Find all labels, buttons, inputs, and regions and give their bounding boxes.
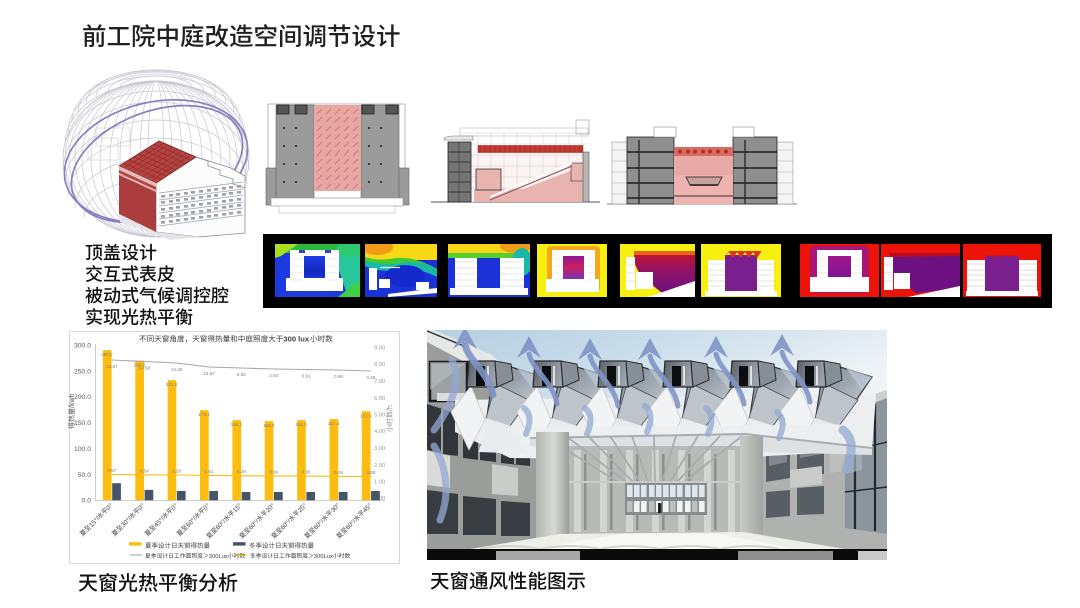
svg-text:155.1: 155.1 <box>231 422 243 427</box>
svg-text:13.87: 13.87 <box>203 371 215 376</box>
svg-text:50.0: 50.0 <box>78 472 91 479</box>
svg-text:153.2: 153.2 <box>263 423 275 428</box>
svg-text:200.0: 200.0 <box>74 394 91 401</box>
svg-text:8.00: 8.00 <box>374 362 385 368</box>
svg-text:3.00: 3.00 <box>374 446 385 452</box>
svg-text:1.51: 1.51 <box>205 469 214 474</box>
svg-text:6.00: 6.00 <box>374 396 385 402</box>
svg-text:15.67: 15.67 <box>106 364 118 369</box>
svg-text:/h: /h <box>387 405 394 411</box>
svg-text:2.00: 2.00 <box>374 463 385 469</box>
svg-text:157.3: 157.3 <box>328 421 340 426</box>
svg-text:300Lux: 300Lux <box>209 554 228 560</box>
svg-text:0.91: 0.91 <box>302 374 311 379</box>
svg-text:14.58: 14.58 <box>139 366 151 371</box>
svg-text:/kwh: /kwh <box>69 394 76 409</box>
svg-text:0.54: 0.54 <box>140 468 149 473</box>
svg-text:231.8: 231.8 <box>166 382 178 387</box>
svg-text:280.2: 280.2 <box>101 352 113 357</box>
svg-text:0.0: 0.0 <box>82 498 92 505</box>
svg-text:0.57: 0.57 <box>107 468 116 473</box>
svg-text:4.36: 4.36 <box>302 470 311 475</box>
svg-text:9.06: 9.06 <box>237 372 246 377</box>
svg-text:300 lux: 300 lux <box>283 335 310 344</box>
svg-text:100.0: 100.0 <box>74 446 91 453</box>
svg-text:171.9: 171.9 <box>360 413 372 418</box>
svg-text:4.29: 4.29 <box>237 469 246 474</box>
svg-text:250.0: 250.0 <box>74 368 91 375</box>
svg-text:150.0: 150.0 <box>74 420 91 427</box>
svg-text:1.00: 1.00 <box>374 480 385 486</box>
svg-text:2.93: 2.93 <box>269 373 278 378</box>
svg-text:0.66: 0.66 <box>334 374 343 379</box>
svg-text:4.00: 4.00 <box>374 429 385 435</box>
svg-text:2.28: 2.28 <box>172 469 181 474</box>
svg-text:174.1: 174.1 <box>198 412 210 417</box>
svg-text:0.48: 0.48 <box>366 375 375 380</box>
svg-text:14.28: 14.28 <box>171 367 183 372</box>
svg-text:5.00: 5.00 <box>374 413 385 419</box>
svg-text:7.00: 7.00 <box>374 379 385 385</box>
svg-text:0.90: 0.90 <box>269 469 278 474</box>
svg-text:4.58: 4.58 <box>366 470 375 475</box>
svg-text:0.29: 0.29 <box>334 470 343 475</box>
svg-text:155.0: 155.0 <box>295 422 307 427</box>
svg-text:300Lux: 300Lux <box>314 554 333 560</box>
svg-text:9.00: 9.00 <box>374 346 385 352</box>
svg-text:300.0: 300.0 <box>74 342 91 349</box>
